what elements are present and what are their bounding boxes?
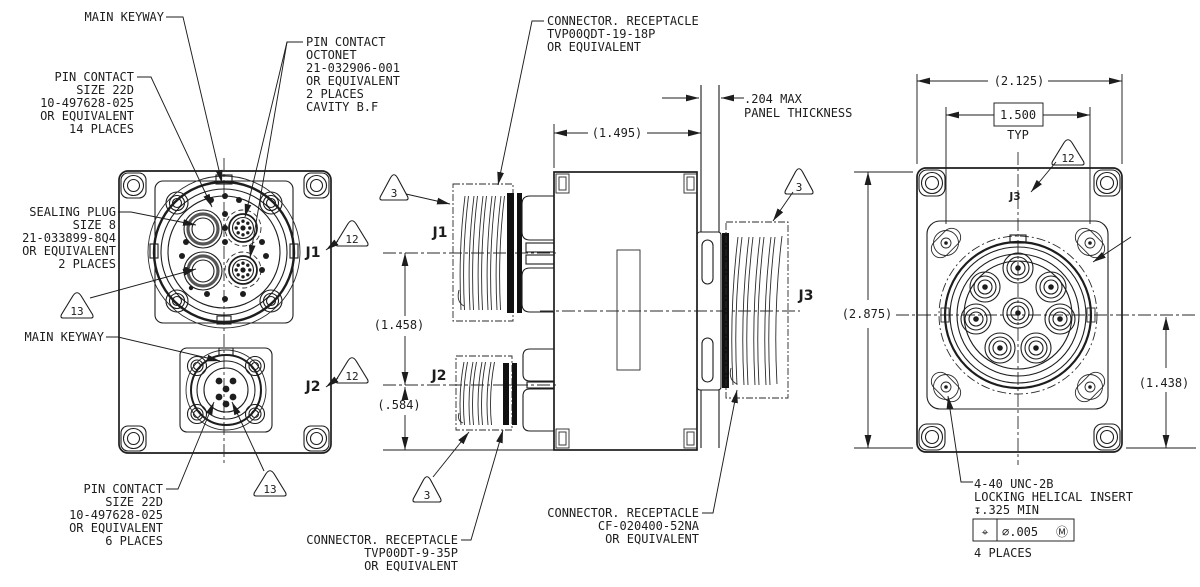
svg-text:SEALING PLUG: SEALING PLUG: [29, 205, 116, 219]
flag-12-j1: 12: [336, 221, 368, 246]
svg-text:PIN CONTACT: PIN CONTACT: [84, 482, 163, 496]
svg-text:CONNECTOR. RECEPTACLE: CONNECTOR. RECEPTACLE: [547, 506, 699, 520]
svg-text:OR EQUIVALENT: OR EQUIVALENT: [40, 109, 134, 123]
octonet-contact-bottom: [225, 252, 261, 288]
svg-text:4 PLACES: 4 PLACES: [974, 546, 1032, 560]
svg-text:12: 12: [345, 370, 358, 383]
svg-text:SIZE 8: SIZE 8: [73, 218, 116, 232]
dim-plate-width: (2.125): [994, 74, 1045, 88]
svg-text:TVP00QDT-19-18P: TVP00QDT-19-18P: [547, 27, 655, 41]
svg-text:12: 12: [1061, 152, 1074, 165]
j1-gasket: [507, 193, 514, 313]
callouts: MAIN KEYWAY PIN CONTACT SIZE 22D 10-4976…: [22, 10, 1133, 573]
body-center-slot: [617, 250, 640, 370]
dimensions: (1.495) (1.458) (.584) (2.125) 1.500 TYP…: [374, 74, 1196, 450]
callout-panel-thickness: .204 MAX PANEL THICKNESS: [744, 92, 852, 120]
label-j1-side: J1: [432, 225, 448, 241]
j1-coupling: [522, 196, 554, 312]
svg-text:SIZE 22D: SIZE 22D: [76, 83, 134, 97]
callout-main-keyway-bottom: MAIN KEYWAY: [25, 330, 220, 361]
j2-main-keyway: [219, 348, 233, 355]
svg-text:OR EQUIVALENT: OR EQUIVALENT: [22, 244, 116, 258]
dim-screw-spacing-typ: TYP: [1007, 128, 1029, 142]
svg-text:10-497628-025: 10-497628-025: [40, 96, 134, 110]
callout-receptacle-j1: CONNECTOR. RECEPTACLE TVP00QDT-19-18P OR…: [498, 14, 699, 185]
svg-text:3: 3: [424, 489, 431, 502]
callout-receptacle-j2: CONNECTOR. RECEPTACLE TVP00DT-9-35P OR E…: [306, 430, 503, 573]
svg-text:MAIN KEYWAY: MAIN KEYWAY: [85, 10, 165, 24]
engineering-drawing-connector-assembly: (1.495) (1.458) (.584) (2.125) 1.500 TYP…: [0, 0, 1200, 587]
svg-text:.204 MAX: .204 MAX: [744, 92, 803, 106]
fcf-tolerance: ⌀.005: [1002, 525, 1038, 539]
svg-text:CONNECTOR. RECEPTACLE: CONNECTOR. RECEPTACLE: [547, 14, 699, 28]
j2-gasket: [503, 363, 509, 425]
dim-body-length: (1.495): [592, 126, 643, 140]
fcf-modifier: Ⓜ: [1056, 525, 1068, 539]
j2-threads: [459, 362, 495, 425]
j3-threads: [730, 236, 782, 385]
j1-side-connector: [453, 184, 554, 321]
position-symbol: ⌖: [982, 525, 989, 539]
flag-3-j2: 3: [413, 477, 441, 502]
flag-12-j3: 12: [1052, 140, 1084, 165]
label-j2-side: J2: [431, 368, 447, 384]
dim-screw-spacing: 1.500: [1000, 108, 1036, 122]
svg-text:TVP00DT-9-35P: TVP00DT-9-35P: [364, 546, 458, 560]
depth-symbol-note: ↧.325 MIN: [974, 503, 1039, 517]
svg-text:OR EQUIVALENT: OR EQUIVALENT: [547, 40, 641, 54]
svg-text:3: 3: [391, 187, 398, 200]
connector-labels: J1 J2 J1 J2 J3 J3: [305, 191, 1021, 395]
svg-text:OR EQUIVALENT: OR EQUIVALENT: [69, 521, 163, 535]
front-view: [119, 158, 331, 463]
label-j1-front: J1: [305, 245, 321, 261]
feature-control-frame: ⌖ ⌀.005 Ⓜ: [973, 519, 1074, 541]
j3-gasket: [722, 233, 729, 388]
flag-13-j2-pins: 13: [254, 471, 286, 496]
j2-coupling: [523, 349, 554, 431]
callout-insert-note: 4-40 UNC-2B LOCKING HELICAL INSERT ↧.325…: [948, 396, 1133, 560]
mounting-panel: [701, 85, 719, 448]
svg-text:CF-020400-52NA: CF-020400-52NA: [598, 519, 700, 533]
flag-3-j3: 3: [785, 169, 813, 194]
svg-text:2 PLACES: 2 PLACES: [306, 87, 364, 101]
svg-text:OR EQUIVALENT: OR EQUIVALENT: [605, 532, 699, 546]
label-j3-side: J3: [798, 288, 814, 304]
svg-text:14 PLACES: 14 PLACES: [69, 122, 134, 136]
j2-pin-contacts: [216, 378, 237, 408]
svg-text:4-40 UNC-2B: 4-40 UNC-2B: [974, 477, 1053, 491]
svg-text:LOCKING HELICAL INSERT: LOCKING HELICAL INSERT: [974, 490, 1133, 504]
rim-leader-line: [1093, 237, 1131, 262]
callout-receptacle-j3: CONNECTOR. RECEPTACLE CF-020400-52NA OR …: [547, 390, 737, 546]
svg-text:3: 3: [796, 181, 803, 194]
svg-text:13: 13: [263, 483, 276, 496]
flag-13-sealing-plug: 13: [61, 293, 93, 318]
dim-j1-j2-spacing: (1.458): [374, 318, 425, 332]
svg-text:13: 13: [70, 305, 83, 318]
svg-text:OR EQUIVALENT: OR EQUIVALENT: [364, 559, 458, 573]
svg-text:SIZE 22D: SIZE 22D: [105, 495, 163, 509]
svg-text:10-497628-025: 10-497628-025: [69, 508, 163, 522]
callout-pin-contact-6: PIN CONTACT SIZE 22D 10-497628-025 OR EQ…: [69, 402, 214, 548]
svg-text:PANEL THICKNESS: PANEL THICKNESS: [744, 106, 852, 120]
svg-text:21-033899-8Q4: 21-033899-8Q4: [22, 231, 116, 245]
j2-side-connector: [456, 349, 554, 431]
svg-text:2 PLACES: 2 PLACES: [58, 257, 116, 271]
svg-text:PIN CONTACT: PIN CONTACT: [306, 35, 385, 49]
rear-view: [896, 152, 1196, 465]
svg-text:21-032906-001: 21-032906-001: [306, 61, 400, 75]
drawing-canvas: (1.495) (1.458) (.584) (2.125) 1.500 TYP…: [0, 0, 1200, 587]
svg-text:CONNECTOR. RECEPTACLE: CONNECTOR. RECEPTACLE: [306, 533, 458, 547]
svg-text:OR EQUIVALENT: OR EQUIVALENT: [306, 74, 400, 88]
dim-j2-base: (.584): [377, 398, 420, 412]
svg-text:12: 12: [345, 233, 358, 246]
dim-plate-height: (2.875): [842, 307, 893, 321]
label-j3-rear: J3: [1008, 191, 1020, 203]
label-j2-front: J2: [305, 379, 321, 395]
sealing-plug-top: [184, 210, 222, 248]
flag-3-j1: 3: [380, 175, 408, 200]
dim-center-to-base: (1.438): [1139, 376, 1190, 390]
svg-text:PIN CONTACT: PIN CONTACT: [55, 70, 134, 84]
svg-text:6 PLACES: 6 PLACES: [105, 534, 163, 548]
svg-text:CAVITY B.F: CAVITY B.F: [306, 100, 378, 114]
flag-12-j2: 12: [336, 358, 368, 383]
svg-text:OCTONET: OCTONET: [306, 48, 357, 62]
svg-text:MAIN KEYWAY: MAIN KEYWAY: [25, 330, 105, 344]
callout-pin-contact-octonet: PIN CONTACT OCTONET 21-032906-001 OR EQU…: [245, 35, 400, 258]
j3-side-connector: [697, 222, 788, 398]
